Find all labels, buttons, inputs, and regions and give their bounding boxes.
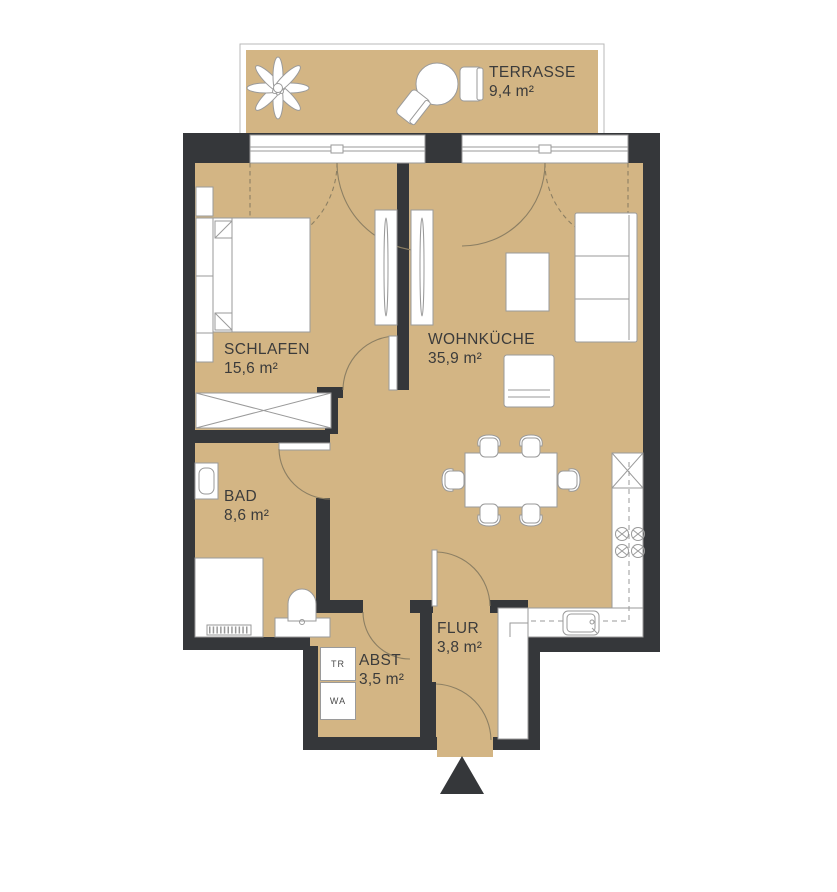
room-name: TERRASSE bbox=[489, 64, 576, 81]
room-area: 15,6 m² bbox=[224, 359, 310, 378]
room-name: BAD bbox=[224, 488, 257, 505]
room-name: WOHNKÜCHE bbox=[428, 331, 535, 348]
dryer-label: TR bbox=[331, 659, 345, 669]
label-flur: FLUR 3,8 m² bbox=[437, 619, 482, 657]
dining-table bbox=[465, 453, 557, 507]
terrace-chair bbox=[460, 67, 483, 101]
washbasin bbox=[195, 463, 218, 499]
dryer-box: TR bbox=[320, 647, 356, 681]
room-area: 9,4 m² bbox=[489, 82, 576, 101]
radiator-bedroom bbox=[375, 210, 397, 325]
room-area: 35,9 m² bbox=[428, 349, 535, 368]
bed bbox=[213, 218, 310, 332]
label-terrasse: TERRASSE 9,4 m² bbox=[489, 63, 576, 101]
washer-box: WA bbox=[320, 682, 356, 720]
sofa bbox=[575, 213, 637, 342]
coffee-table bbox=[506, 253, 549, 311]
floor-plan: TERRASSE 9,4 m² SCHLAFEN 15,6 m² WOHNKÜC… bbox=[0, 0, 837, 892]
label-bad: BAD 8,6 m² bbox=[224, 487, 269, 525]
room-name: ABST bbox=[359, 652, 401, 669]
bedside-column bbox=[196, 218, 213, 362]
label-wohnkueche: WOHNKÜCHE 35,9 m² bbox=[428, 330, 535, 368]
washer-label: WA bbox=[330, 696, 346, 706]
kitchen-sink bbox=[563, 611, 599, 635]
floor-plan-drawing bbox=[0, 0, 837, 892]
shower bbox=[195, 558, 263, 637]
kitchen-tall-unit bbox=[612, 453, 643, 488]
label-abst: ABST 3,5 m² bbox=[359, 651, 404, 689]
room-area: 8,6 m² bbox=[224, 506, 269, 525]
room-area: 3,8 m² bbox=[437, 638, 482, 657]
bedroom-shaft bbox=[196, 187, 213, 216]
label-schlafen: SCHLAFEN 15,6 m² bbox=[224, 340, 310, 378]
room-area: 3,5 m² bbox=[359, 670, 404, 689]
entrance-arrow-icon bbox=[440, 756, 484, 794]
flur-closet bbox=[498, 608, 528, 739]
wardrobe bbox=[196, 393, 331, 428]
plant-icon bbox=[247, 57, 309, 119]
radiator-living bbox=[411, 210, 433, 325]
room-name: SCHLAFEN bbox=[224, 341, 310, 358]
room-name: FLUR bbox=[437, 620, 479, 637]
